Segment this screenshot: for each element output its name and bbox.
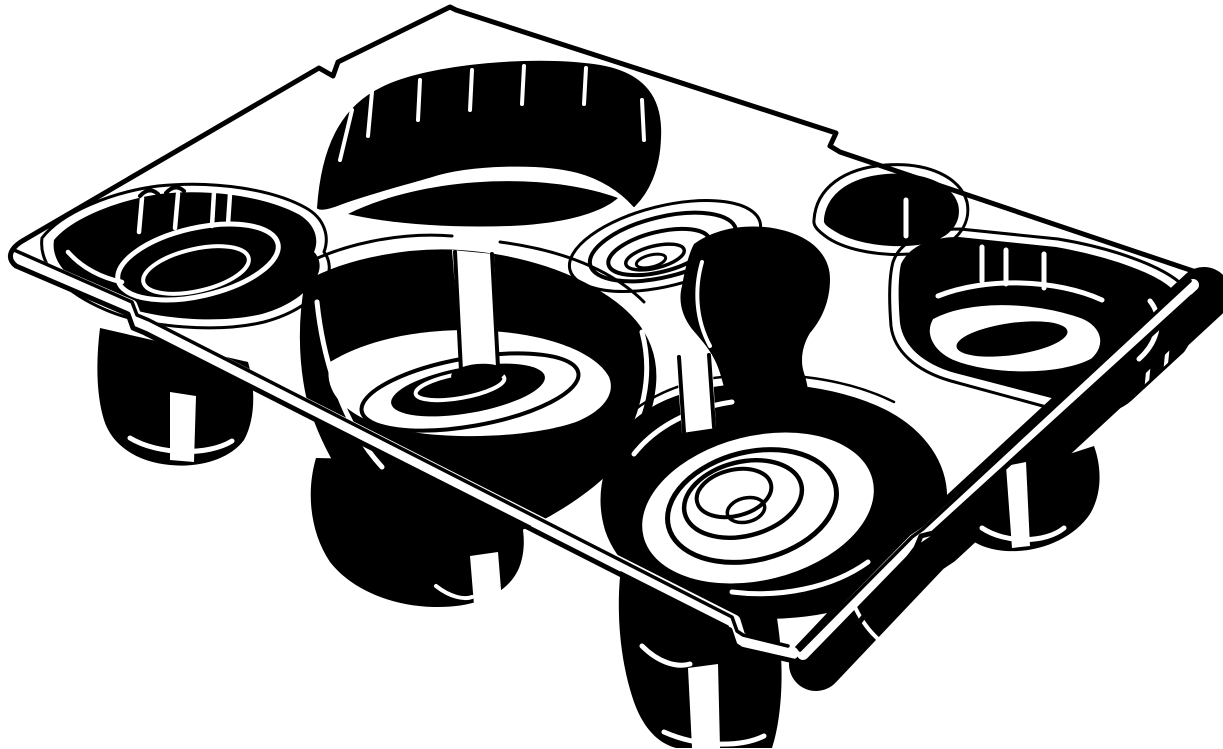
tray-line-art xyxy=(0,0,1223,749)
foot-bottom-stripe xyxy=(688,664,720,748)
foot-midleft-stripe xyxy=(470,552,502,605)
figure xyxy=(0,0,1223,749)
